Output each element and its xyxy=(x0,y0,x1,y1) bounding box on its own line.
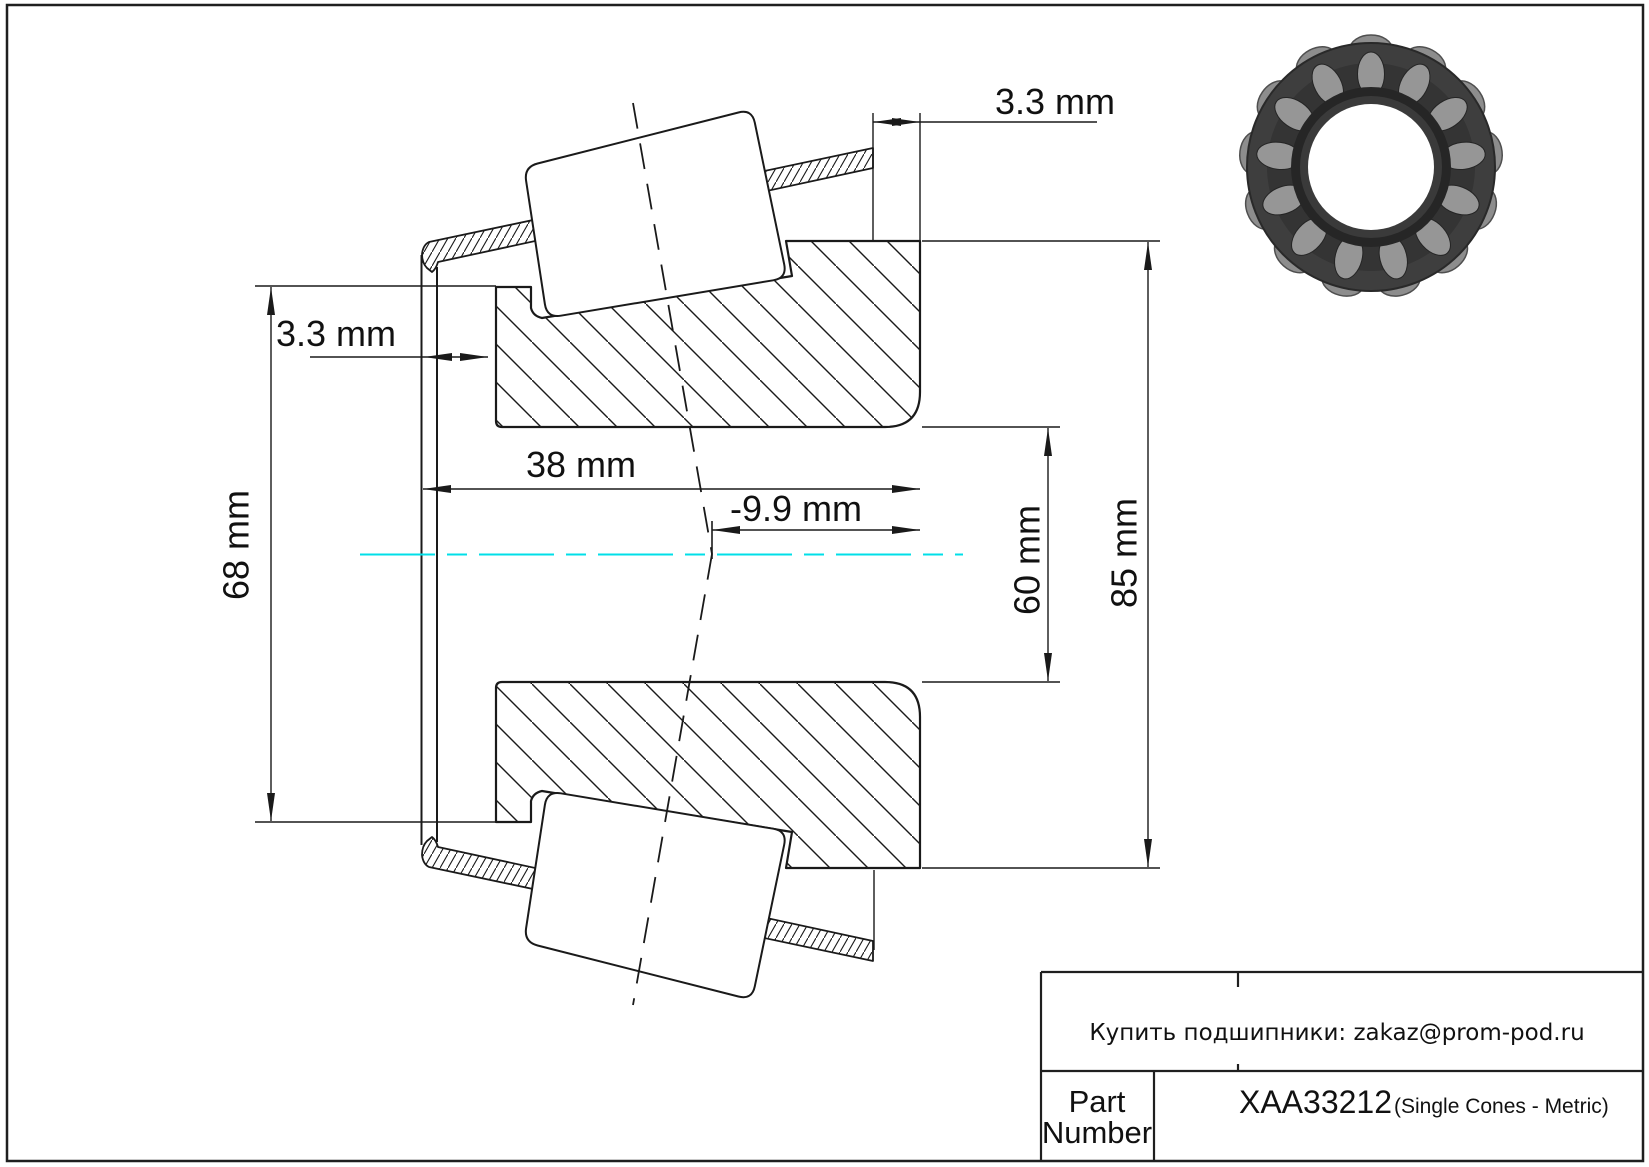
roller-top xyxy=(526,112,785,316)
dim-left-offset-label: 3.3 mm xyxy=(276,313,396,354)
bearing-section-view: 3.3 mm 3.3 mm 68 mm 38 mm xyxy=(216,81,1161,1005)
bearing-photo xyxy=(1237,35,1504,300)
dim-top-offset-label: 3.3 mm xyxy=(995,81,1115,122)
dim-width-label: 38 mm xyxy=(526,444,636,485)
dim-width: 38 mm xyxy=(423,444,920,489)
dim-bore-label: 60 mm xyxy=(1007,505,1048,615)
part-number-label-line2: Number xyxy=(1042,1115,1152,1150)
supplier-note: Купить подшипники: zakaz@prom-pod.ru xyxy=(1089,1020,1584,1046)
dim-outer-diameter-label: 85 mm xyxy=(1104,498,1145,608)
dim-top-offset: 3.3 mm xyxy=(873,81,1115,241)
title-block: Купить подшипники: zakaz@prom-pod.ru Par… xyxy=(1041,972,1643,1161)
part-type-suffix: (Single Cones - Metric) xyxy=(1394,1095,1609,1118)
drawing-page: 3.3 mm 3.3 mm 68 mm 38 mm xyxy=(0,0,1649,1167)
dim-left-diameter-label: 68 mm xyxy=(216,490,257,600)
dim-center-offset-label: -9.9 mm xyxy=(730,488,862,529)
roller-bottom xyxy=(526,793,785,997)
dim-center-offset: -9.9 mm xyxy=(712,488,920,530)
part-number-value: XAA33212 xyxy=(1239,1084,1392,1120)
part-number-label-line1: Part xyxy=(1069,1084,1126,1119)
bearing-bore-hole xyxy=(1308,104,1434,230)
dim-left-offset: 3.3 mm xyxy=(276,313,488,357)
